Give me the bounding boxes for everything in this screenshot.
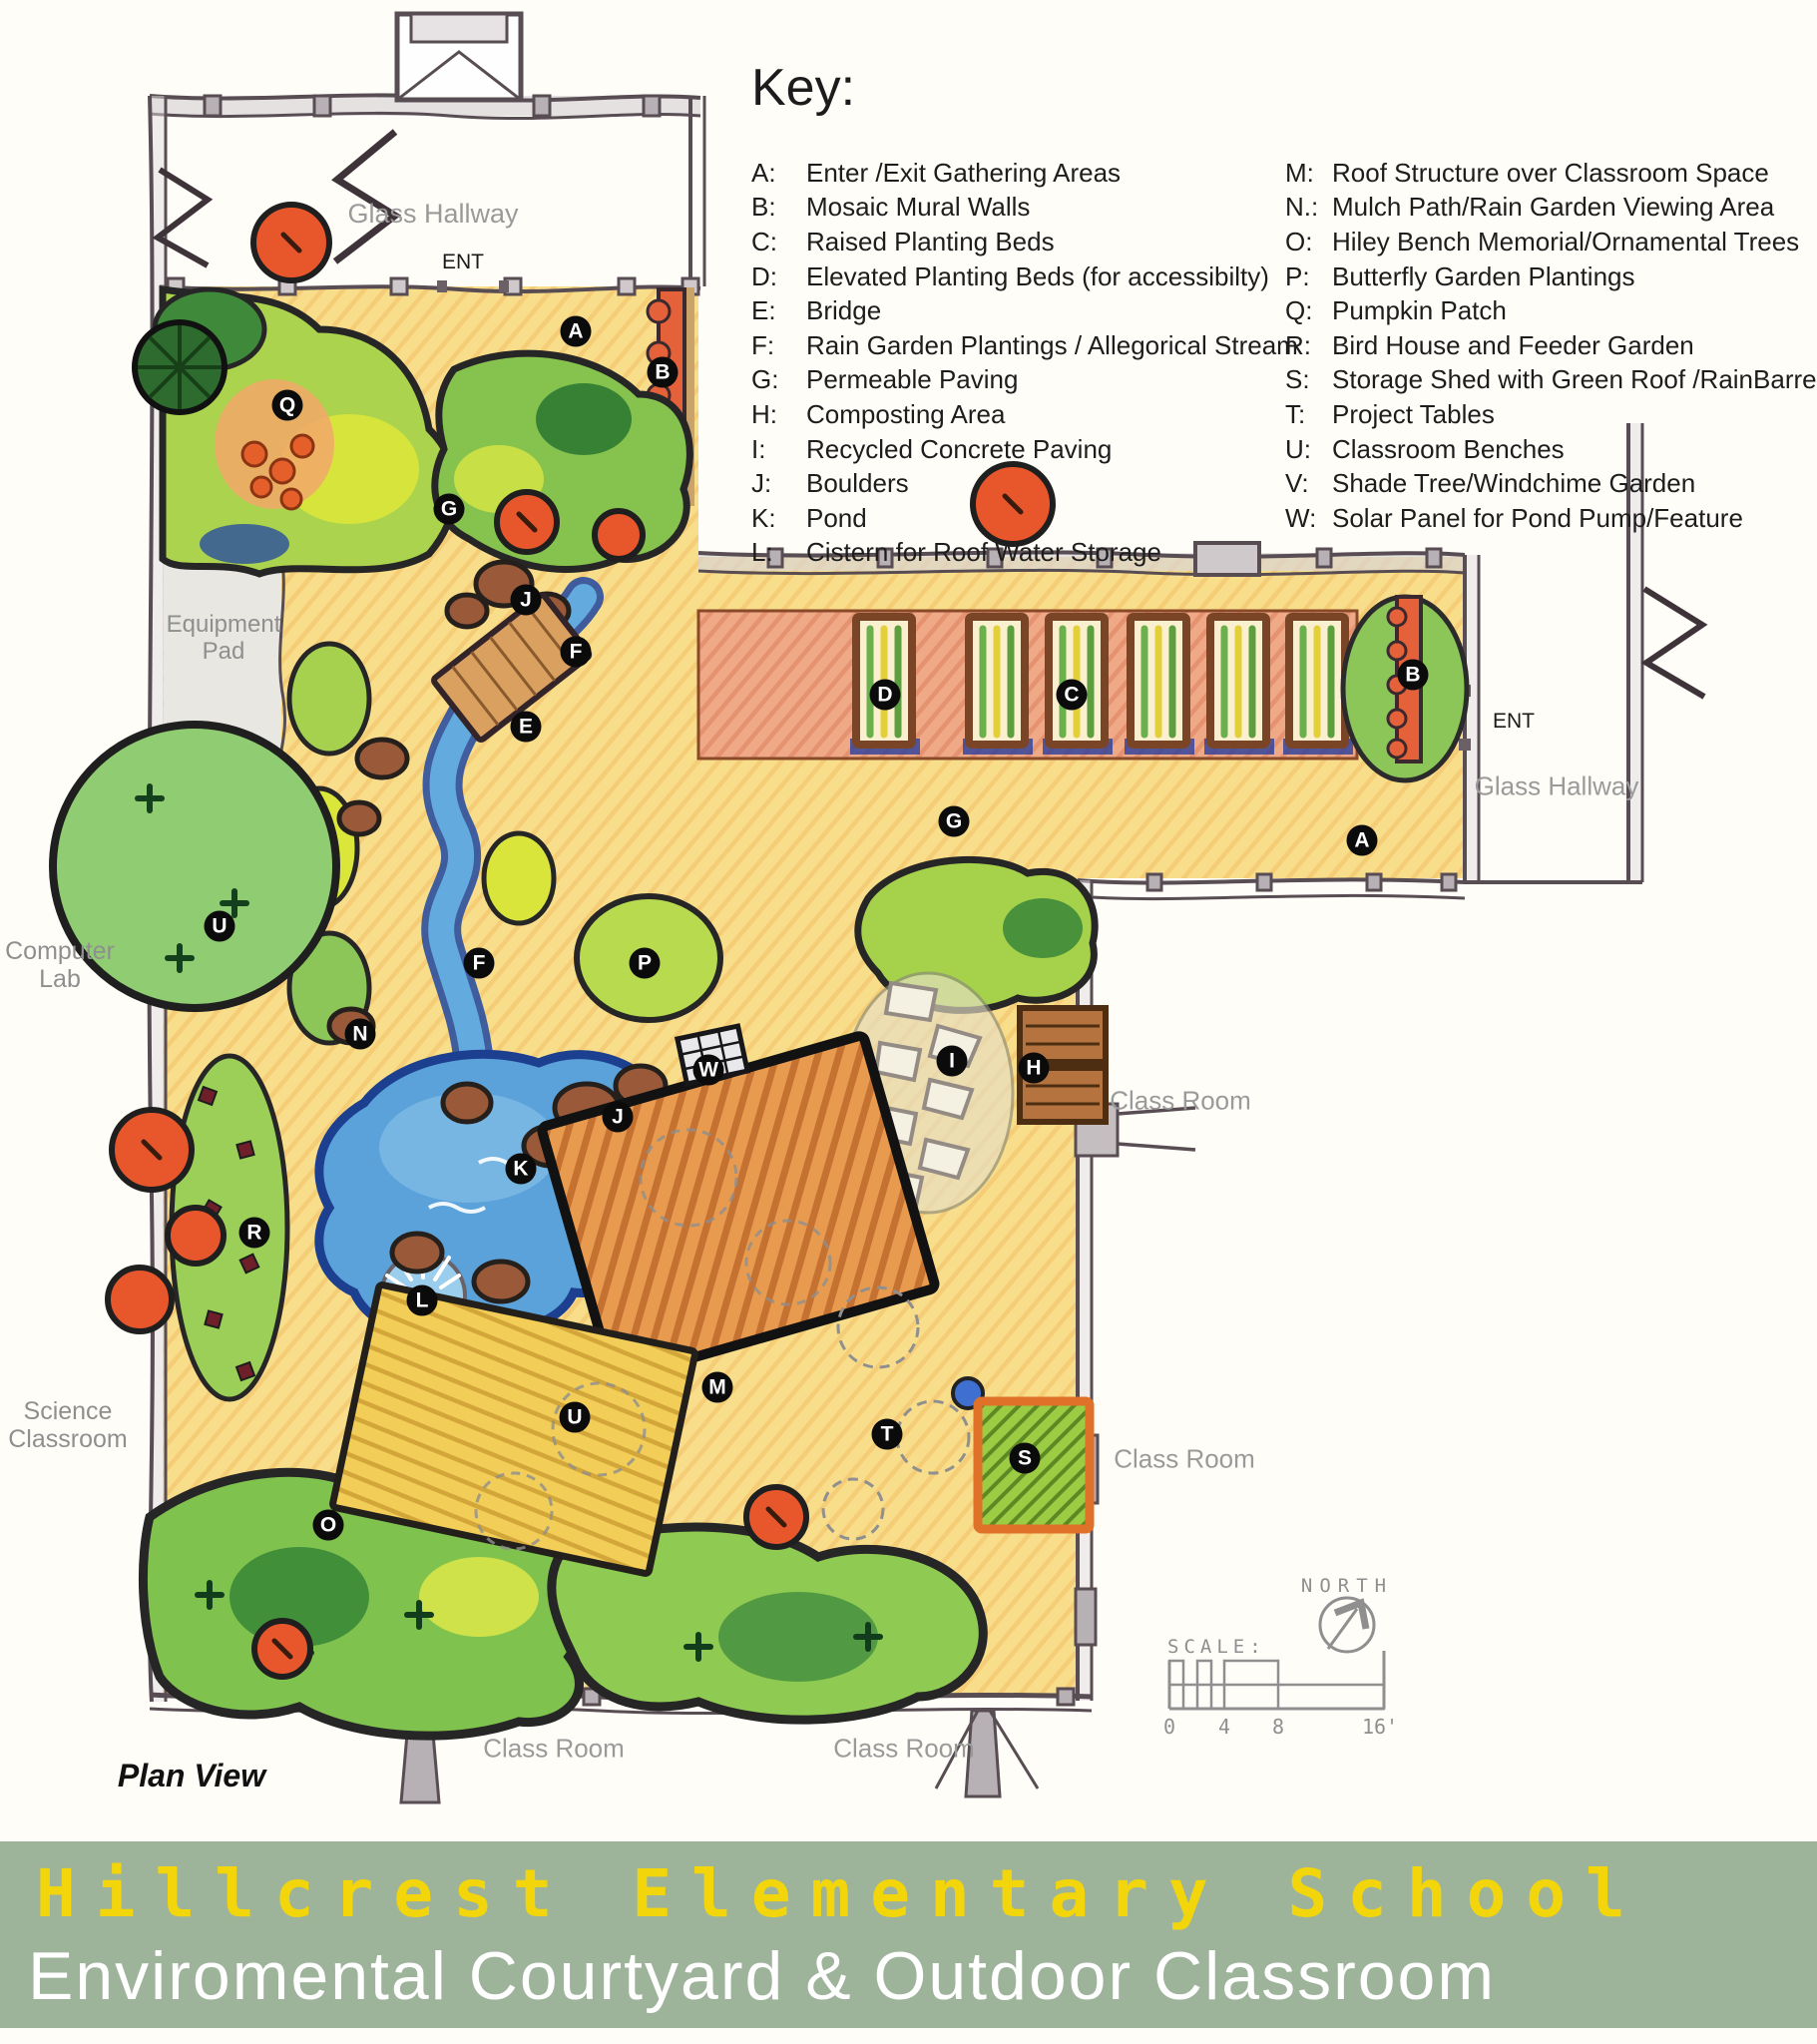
plan-marker-a: A — [561, 316, 592, 347]
plan-marker-e: E — [511, 712, 542, 743]
equipment-pad-label: Equipment Pad — [159, 612, 288, 666]
class-room-bottom-1-label: Class Room — [444, 1734, 664, 1763]
key-item-n: N.:Mulch Path/Rain Garden Viewing Area — [1285, 191, 1804, 226]
key-item-o: O:Hiley Bench Memorial/Ornamental Trees — [1285, 225, 1804, 259]
scale-tick-16: 16' — [1362, 1715, 1398, 1739]
key-item-letter: C: — [751, 227, 806, 257]
class-room-right-2-label: Class Room — [1075, 1444, 1294, 1473]
title-banner: Hillcrest Elementary School Enviromental… — [0, 1841, 1817, 2028]
key-item-letter: W: — [1285, 503, 1332, 534]
key-item-k: K:Pond — [751, 501, 1280, 536]
key-item-letter: B: — [751, 192, 806, 223]
plan-marker-f: F — [464, 948, 495, 979]
scale-tick-4: 4 — [1218, 1715, 1230, 1739]
key-item-label: Rain Garden Plantings / Allegorical Stre… — [806, 330, 1298, 361]
key-item-label: Solar Panel for Pond Pump/Feature — [1332, 503, 1743, 534]
key-item-s: S:Storage Shed with Green Roof /RainBarr… — [1285, 363, 1804, 398]
key-item-label: Elevated Planting Beds (for accessibilty… — [806, 261, 1269, 292]
key-item-label: Butterfly Garden Plantings — [1332, 261, 1635, 292]
plan-marker-r: R — [239, 1218, 270, 1249]
glass-hallway-right-label: Glass Hallway — [1417, 771, 1696, 800]
plan-marker-l: L — [407, 1285, 438, 1316]
key-item-w: W:Solar Panel for Pond Pump/Feature — [1285, 501, 1804, 536]
scale-bar — [1169, 1651, 1384, 1709]
plan-marker-f: F — [561, 637, 592, 668]
plan-marker-g: G — [939, 806, 970, 837]
key-item-v: V:Shade Tree/Windchime Garden — [1285, 466, 1804, 501]
plan-marker-t: T — [872, 1419, 903, 1450]
plan-marker-j: J — [603, 1102, 634, 1133]
key-item-label: Bird House and Feeder Garden — [1332, 330, 1694, 361]
scale-tick-8: 8 — [1272, 1715, 1284, 1739]
key-item-letter: I: — [751, 434, 806, 465]
key-item-label: Permeable Paving — [806, 364, 1018, 395]
north-arrow — [1320, 1598, 1374, 1652]
key-item-label: Hiley Bench Memorial/Ornamental Trees — [1332, 227, 1799, 257]
scale-tick-0: 0 — [1163, 1715, 1175, 1739]
ent-top-label: ENT — [413, 251, 513, 274]
mosaic-mural-wall-right — [1343, 597, 1467, 780]
key-item-h: H:Composting Area — [751, 397, 1280, 432]
key-item-label: Mosaic Mural Walls — [806, 192, 1030, 223]
plan-marker-h: H — [1019, 1053, 1050, 1084]
key-item-label: Bridge — [806, 295, 881, 326]
plan-marker-s: S — [1010, 1443, 1041, 1474]
banner-title: Hillcrest Elementary School — [36, 1855, 1645, 1932]
science-classroom-label: Science Classroom — [0, 1397, 143, 1453]
key-item-label: Raised Planting Beds — [806, 227, 1055, 257]
key-item-letter: J: — [751, 468, 806, 499]
glass-hallway-top-label: Glass Hallway — [293, 199, 573, 229]
key-item-letter: E: — [751, 295, 806, 326]
key-item-label: Composting Area — [806, 399, 1005, 430]
key-item-label: Recycled Concrete Paving — [806, 434, 1112, 465]
key-item-t: T:Project Tables — [1285, 397, 1804, 432]
plan-marker-g: G — [434, 494, 465, 525]
key-item-letter: L: — [751, 537, 806, 568]
key-item-label: Project Tables — [1332, 399, 1495, 430]
key-item-letter: H: — [751, 399, 806, 430]
plan-marker-d: D — [870, 680, 901, 711]
key-item-f: F:Rain Garden Plantings / Allegorical St… — [751, 328, 1280, 363]
key-item-label: Boulders — [806, 468, 909, 499]
key-item-letter: U: — [1285, 434, 1332, 465]
key-item-letter: A: — [751, 158, 806, 189]
plan-marker-m: M — [702, 1372, 733, 1403]
plan-marker-a: A — [1347, 825, 1378, 856]
key-item-letter: D: — [751, 261, 806, 292]
plan-marker-q: Q — [272, 390, 303, 421]
plan-marker-b: B — [1398, 660, 1429, 691]
key-item-label: Pumpkin Patch — [1332, 295, 1507, 326]
key-item-label: Mulch Path/Rain Garden Viewing Area — [1332, 192, 1774, 223]
key-column-right: M:Roof Structure over Classroom SpaceN.:… — [1285, 156, 1804, 536]
key-item-d: D:Elevated Planting Beds (for accessibil… — [751, 259, 1280, 294]
banner-subtitle: Enviromental Courtyard & Outdoor Classro… — [28, 1937, 1496, 2015]
class-room-bottom-2-label: Class Room — [794, 1734, 1014, 1763]
key-item-label: Enter /Exit Gathering Areas — [806, 158, 1121, 189]
plan-view-label: Plan View — [82, 1759, 301, 1794]
key-item-letter: T: — [1285, 399, 1332, 430]
plan-marker-o: O — [313, 1510, 344, 1541]
key-item-letter: V: — [1285, 468, 1332, 499]
ent-right-label: ENT — [1464, 710, 1564, 734]
plan-marker-p: P — [630, 948, 661, 979]
key-item-label: Storage Shed with Green Roof /RainBarrel — [1332, 364, 1817, 395]
key-item-l: L:Cistern for Roof Water Storage — [751, 536, 1280, 571]
scale-label: SCALE: — [1167, 1636, 1266, 1658]
key-item-e: E:Bridge — [751, 293, 1280, 328]
plan-marker-n: N — [345, 1019, 376, 1050]
key-item-r: R:Bird House and Feeder Garden — [1285, 328, 1804, 363]
key-item-q: Q:Pumpkin Patch — [1285, 293, 1804, 328]
key-item-letter: N.: — [1285, 192, 1332, 223]
key-item-letter: G: — [751, 364, 806, 395]
key-column-left: A:Enter /Exit Gathering AreasB:Mosaic Mu… — [751, 156, 1280, 570]
key-item-letter: R: — [1285, 330, 1332, 361]
key-item-m: M:Roof Structure over Classroom Space — [1285, 156, 1804, 191]
plan-marker-b: B — [648, 357, 679, 388]
computer-lab-label: Computer Lab — [0, 937, 125, 993]
key-item-label: Shade Tree/Windchime Garden — [1332, 468, 1695, 499]
key-item-letter: K: — [751, 503, 806, 534]
key-item-label: Cistern for Roof Water Storage — [806, 537, 1161, 568]
key-item-a: A:Enter /Exit Gathering Areas — [751, 156, 1280, 191]
class-room-right-1-label: Class Room — [1071, 1086, 1290, 1115]
key-title: Key: — [751, 58, 855, 118]
key-item-b: B:Mosaic Mural Walls — [751, 191, 1280, 226]
key-item-i: I:Recycled Concrete Paving — [751, 432, 1280, 467]
key-item-j: J:Boulders — [751, 466, 1280, 501]
key-item-c: C:Raised Planting Beds — [751, 225, 1280, 259]
key-item-letter: F: — [751, 330, 806, 361]
key-item-letter: M: — [1285, 158, 1332, 189]
plan-marker-j: J — [511, 585, 542, 616]
plan-marker-k: K — [506, 1154, 537, 1185]
key-item-u: U:Classroom Benches — [1285, 432, 1804, 467]
plan-marker-u: U — [205, 911, 235, 942]
plan-marker-w: W — [693, 1055, 724, 1086]
key-item-letter: Q: — [1285, 295, 1332, 326]
key-item-letter: P: — [1285, 261, 1332, 292]
key-item-g: G:Permeable Paving — [751, 363, 1280, 398]
key-item-p: P:Butterfly Garden Plantings — [1285, 259, 1804, 294]
key-item-label: Roof Structure over Classroom Space — [1332, 158, 1769, 189]
site-plan-page: Key: A:Enter /Exit Gathering AreasB:Mosa… — [0, 0, 1817, 2044]
north-label: NORTH — [1301, 1575, 1393, 1597]
key-item-label: Classroom Benches — [1332, 434, 1565, 465]
plan-marker-u: U — [560, 1402, 591, 1433]
key-item-letter: O: — [1285, 227, 1332, 257]
key-item-label: Pond — [806, 503, 867, 534]
key-item-letter: S: — [1285, 364, 1332, 395]
evergreen-tree — [135, 322, 225, 412]
plan-marker-i: I — [937, 1046, 968, 1077]
plan-marker-c: C — [1057, 680, 1088, 711]
